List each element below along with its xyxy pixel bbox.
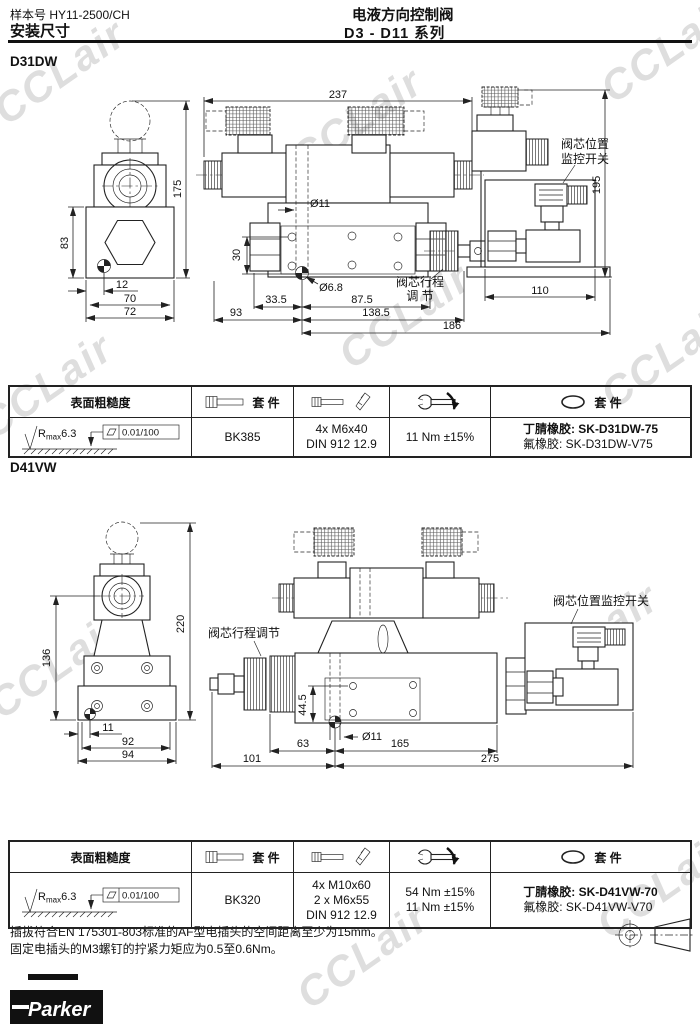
spec-table-d31dw: 表面粗糙度 套 件 [8,385,692,458]
rmax-r: R [38,428,46,440]
monitor-switch-label: 阀芯位置 [561,136,609,151]
datasheet-page: CCLair CCLair CCLair CCLair CCLair CCLai… [0,0,700,1024]
seal-kit-value: 丁腈橡胶: SK-D31DW-75 氟橡胶: SK-D31DW-V75 [491,418,690,456]
dim-label: 87.5 [351,294,372,306]
screw-icon [311,850,345,864]
dim-label: Ø6.8 [319,282,343,294]
seal-kit-header: 套 件 [491,842,690,872]
torque-value: 54 Nm ±15% 11 Nm ±15% [390,873,491,927]
bolt-kit-header-label: 套 件 [252,849,279,866]
screw-icon [205,395,245,409]
roughness-symbol: Rmax6.3 0.01/100 [17,881,185,919]
dim-label: 93 [230,307,242,319]
svg-text:Rmax6.3: Rmax6.3 [38,428,76,442]
d31dw-drawing: 83 175 12 70 72 [0,85,700,385]
screws-header [294,387,390,417]
bolt-kit-header: 套 件 [192,387,294,417]
dim-label: 220 [175,615,187,633]
roughness-value: Rmax6.3 0.01/100 [10,418,192,456]
flatness-value: 0.01/100 [122,891,159,902]
torque-header [390,387,491,417]
torque-value: 11 Nm ±15% [390,418,491,456]
d41vw-drawing: 136 220 11 92 94 [0,490,700,835]
roughness-header: 表面粗糙度 [10,842,192,872]
header-rule [8,40,692,43]
roughness-header: 表面粗糙度 [10,387,192,417]
stroke-adjust-label: 阀芯行程 [396,274,444,289]
oring-icon [559,849,587,865]
dim-label: Ø11 [362,731,382,743]
monitor-switch-label: 阀芯位置监控开关 [553,593,649,608]
bolt-kit-value: BK385 [192,418,294,456]
rmax-r: R [38,891,46,903]
screws-value: 4x M10x60 2 x M6x55 DIN 912 12.9 [294,873,390,927]
dim-label: 92 [122,736,134,748]
torque-wrench-icon [416,391,464,413]
torque-header [390,842,491,872]
dim-label: 72 [124,306,136,318]
screw-icon [311,395,345,409]
screw-icon [205,850,245,864]
caliper-icon [352,392,372,412]
dim-label: 165 [391,738,409,750]
brand-name: Parker [28,999,91,1021]
dim-label: 101 [243,753,261,765]
footnote: 固定电插头的M3螺钉的拧紧力矩应为0.5至0.6Nm。 [10,941,383,958]
section-title-d41vw: D41VW [10,460,57,475]
caliper-icon [352,847,372,867]
screws-header [294,842,390,872]
stroke-adjust-label: 调 节 [406,289,433,303]
dim-label: 12 [116,279,128,291]
svg-text:Rmax6.3: Rmax6.3 [38,891,76,905]
flatness-value: 0.01/100 [122,428,159,439]
seal-kit-header: 套 件 [491,387,690,417]
dim-label: 11 [102,722,113,734]
dim-label: 83 [59,237,71,249]
roughness-header-label: 表面粗糙度 [70,849,130,866]
seal-kit-value: 丁腈橡胶: SK-D41VW-70 氟橡胶: SK-D41VW-V70 [491,873,690,927]
screws-value: 4x M6x40 DIN 912 12.9 [294,418,390,456]
bolt-kit-value: BK320 [192,873,294,927]
monitor-switch-label: 监控开关 [561,152,609,166]
footnotes: 插拔符合EN 175301-803标准的AF型电插头的空间距离至少为15mm。 … [10,924,383,958]
d41vw-front-view: 136 220 11 92 94 [41,522,196,764]
stroke-adjust-label: 阀芯行程调节 [208,625,280,640]
dim-label: Ø11 [310,198,330,210]
seal-kit-header-label: 套 件 [594,394,621,411]
dim-label: 275 [481,753,499,765]
parker-logo: Parker [10,990,103,1024]
dim-label: 136 [41,649,53,667]
seal-kit-header-label: 套 件 [594,849,621,866]
page-subject: 安装尺寸 [10,20,70,41]
dim-label: 63 [297,738,309,750]
dim-label: 33.5 [265,294,286,306]
d41vw-monitor-view: 阀芯位置监控开关 [506,593,649,714]
bolt-kit-header: 套 件 [192,842,294,872]
roughness-symbol: Rmax6.3 0.01/100 [17,418,185,456]
torque-wrench-icon [416,846,464,868]
bolt-kit-header-label: 套 件 [252,394,279,411]
dim-label: 195 [591,176,603,194]
oring-icon [559,394,587,410]
rmax-sub: max [45,433,60,442]
roughness-header-label: 表面粗糙度 [70,394,130,411]
spec-table-d41vw: 表面粗糙度 套 件 [8,840,692,929]
dim-label: 30 [231,249,243,261]
roughness-value: Rmax6.3 0.01/100 [10,873,192,927]
dim-label: 70 [124,293,136,305]
d31dw-monitor-view: 阀芯位置 监控开关 195 110 [467,87,612,301]
rmax-value: 6.3 [61,428,76,440]
dim-label: 237 [329,89,347,101]
d31dw-front-view: 83 175 12 70 72 [59,101,190,322]
dim-label: 110 [531,285,549,297]
dim-label: 138.5 [362,307,390,319]
rmax-sub: max [45,896,60,905]
dim-label: 94 [122,749,134,761]
logo-bar [28,974,78,980]
dim-label: 175 [172,180,184,198]
dim-label: 44.5 [297,694,309,715]
dim-label: 186 [443,320,461,332]
rmax-value: 6.3 [61,891,76,903]
section-title-d31dw: D31DW [10,54,57,69]
